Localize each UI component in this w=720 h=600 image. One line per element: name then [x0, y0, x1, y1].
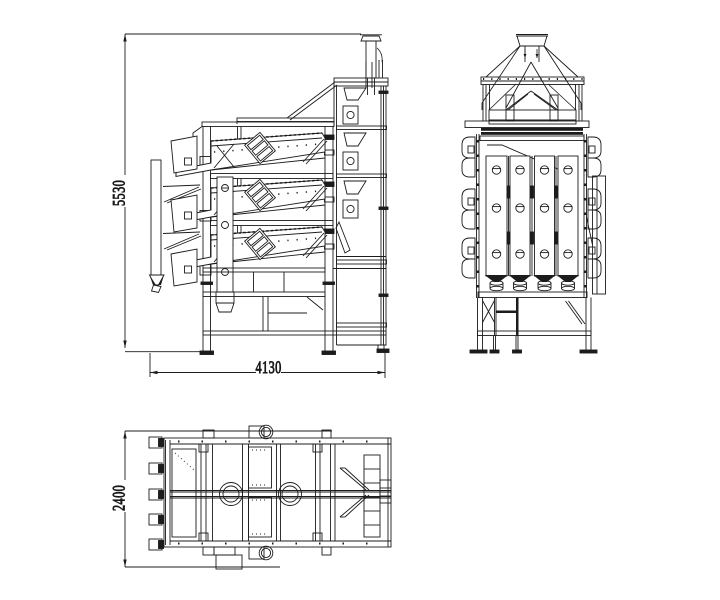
svg-text:4130: 4130	[256, 357, 282, 377]
svg-text:2400: 2400	[109, 485, 129, 511]
svg-text:5530: 5530	[109, 180, 129, 206]
